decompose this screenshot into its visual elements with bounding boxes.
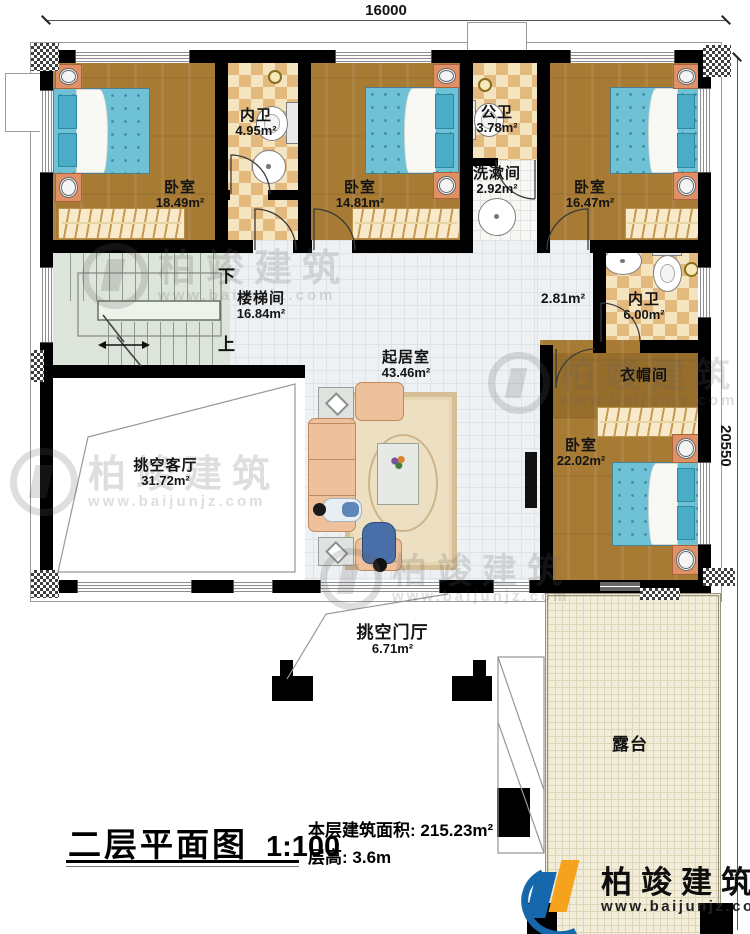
pillow: [58, 95, 77, 129]
foyer-column: [452, 676, 492, 701]
tv: [525, 452, 537, 508]
plan-title-row: 二层平面图 1:100: [68, 818, 340, 866]
wall-band1-e: [590, 240, 711, 253]
bed-bedroom3: [610, 87, 700, 174]
bed-bedroom1: [53, 88, 150, 174]
dimension-line-right: [737, 57, 738, 930]
pillow: [677, 506, 695, 540]
hatch-left-mid: [31, 350, 44, 382]
bay-outline-left: [5, 73, 42, 132]
label-bedroom3: 卧室 16.47m²: [555, 180, 625, 210]
nightstand: [433, 172, 460, 199]
toilet-icon: [653, 255, 682, 292]
end-table: [318, 387, 354, 419]
window-top-bedroom2: [335, 50, 432, 63]
blanket: [648, 463, 678, 545]
hatch-top-right: [703, 45, 731, 77]
towel-hook-icon: [268, 70, 282, 84]
wall-washroom-bed3: [537, 63, 550, 253]
bed-bedroom4: [612, 462, 700, 546]
nightstand: [55, 173, 82, 202]
wall-band1-c: [352, 240, 473, 253]
dimension-line-top: [45, 20, 727, 21]
wall-ensuite2-bottom: [640, 340, 711, 353]
stair-down-label: 下: [218, 262, 235, 287]
label-bedroom2: 卧室 14.81m²: [325, 180, 395, 210]
nightstand: [433, 64, 460, 88]
wardrobe-cloakroom: [597, 407, 700, 437]
label-void-living: 挑空客厅 31.72m²: [118, 458, 213, 488]
nightstand: [673, 172, 700, 200]
label-living: 起居室 43.46m²: [368, 350, 444, 380]
window-right-bedroom3: [698, 88, 711, 173]
pillow: [677, 468, 695, 502]
brand-name: 柏竣建筑: [601, 867, 750, 900]
window-bottom-4: [493, 580, 530, 593]
window-right-ensuite2: [698, 267, 711, 318]
label-hall-area: 2.81m²: [538, 291, 588, 306]
hatch-bottom-right: [703, 568, 735, 586]
plan-title: 二层平面图: [68, 818, 248, 866]
title-underline: [66, 860, 299, 863]
pillow: [435, 133, 454, 168]
stair-up-label: 上: [218, 330, 235, 355]
pillow: [677, 94, 695, 129]
person-sitting: [362, 522, 396, 564]
label-ensuite2: 内卫 6.00m²: [612, 292, 676, 322]
window-bottom-3: [320, 580, 440, 593]
window-bottom-2: [233, 580, 273, 593]
label-cloakroom: 衣帽间: [604, 368, 684, 384]
shower-head-icon: [684, 262, 699, 277]
dimension-right-value: 20550: [717, 425, 734, 467]
title-underline-thin: [66, 866, 299, 867]
floor-area-note: 本层建筑面积: 215.23m²: [308, 816, 493, 841]
window-right-bedroom4: [698, 462, 711, 545]
pillow: [435, 94, 454, 129]
nightstand: [55, 64, 82, 89]
wall-stair-bottom: [53, 365, 305, 378]
brand-logo: 柏竣建筑 www.baijunjz.com: [525, 858, 750, 924]
brand-logo-icon: [525, 858, 589, 924]
window-left-bedroom1: [40, 90, 53, 173]
label-void-foyer: 挑空门厅 6.71m²: [345, 624, 440, 656]
terrace-pier: [497, 788, 530, 837]
dimension-top-value: 16000: [356, 2, 416, 19]
hatch-bottom-left: [31, 570, 59, 598]
end-table: [318, 537, 354, 566]
terrace-door: [600, 582, 640, 591]
wall-ensuite1-bed2: [298, 63, 311, 253]
wardrobe-bedroom3: [625, 208, 700, 239]
brand-url: www.baijunjz.com: [601, 899, 750, 915]
hatch-terrace-corner: [640, 588, 680, 600]
floor-height-note: 层高: 3.6m: [308, 843, 391, 868]
wall-living-bed4: [540, 345, 553, 593]
sink-icon: [252, 150, 286, 184]
window-top-bedroom1: [75, 50, 190, 63]
window-top-bedroom3: [570, 50, 675, 63]
sink-icon: [478, 198, 516, 236]
blanket: [76, 89, 108, 173]
label-bedroom1: 卧室 18.49m²: [135, 180, 225, 210]
armchair: [355, 382, 404, 421]
hatch-top-left: [31, 43, 59, 71]
wall-ensuite1-bottom-b: [268, 190, 311, 200]
label-bedroom4: 卧室 22.02m²: [548, 438, 614, 468]
label-stairwell: 楼梯间 16.84m²: [228, 291, 294, 321]
flue-outline: [467, 22, 527, 53]
floor-plan-canvas: 卧室 18.49m² 内卫 4.95m² 卧室 14.81m² 公卫 3.78m…: [0, 0, 750, 934]
wardrobe-bedroom2: [352, 208, 460, 239]
wall-bed1-ensuite1: [215, 63, 228, 253]
window-bottom-1: [77, 580, 192, 593]
nightstand: [673, 64, 700, 89]
wall-hall-ensuite2: [593, 240, 606, 353]
coffee-table: [377, 443, 419, 505]
bed-bedroom2: [365, 87, 459, 174]
wardrobe-bedroom1: [58, 208, 185, 239]
label-publicbath: 公卫 3.78m²: [466, 105, 528, 135]
nightstand: [672, 434, 700, 463]
nightstand: [672, 545, 700, 575]
pillow: [677, 133, 695, 168]
person-lying: [322, 498, 362, 522]
foyer-column: [272, 676, 313, 701]
stair-flight-upper: [58, 253, 220, 301]
label-terrace: 露台: [598, 736, 662, 754]
label-washroom: 洗漱间 2.92m²: [462, 166, 532, 196]
towel-hook-icon: [478, 78, 492, 92]
stair-flight-lower: [96, 322, 220, 366]
pillow: [58, 133, 77, 167]
blanket: [648, 88, 678, 173]
label-ensuite1: 内卫 4.95m²: [226, 108, 286, 138]
blanket: [404, 88, 436, 173]
window-left-stair: [40, 267, 53, 343]
